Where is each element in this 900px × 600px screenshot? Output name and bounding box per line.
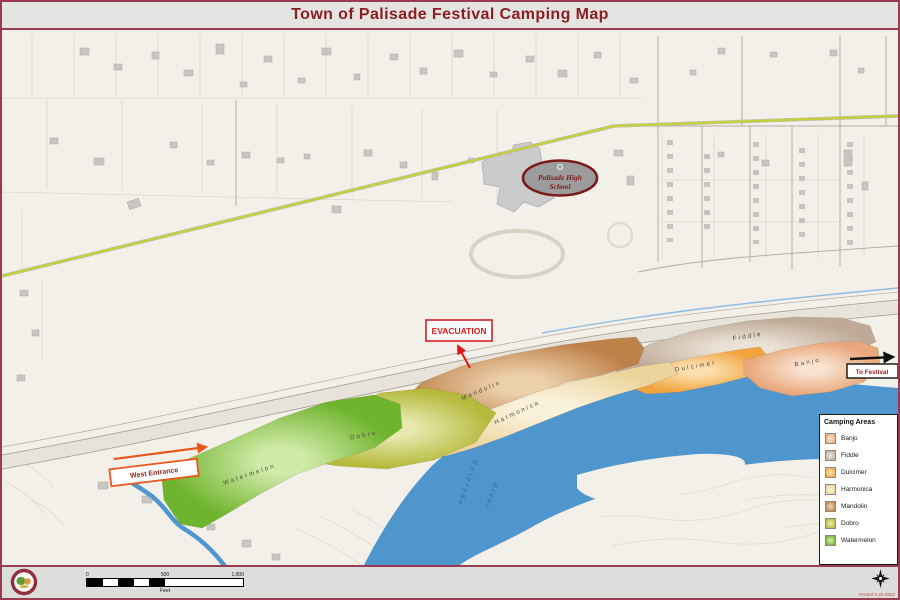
legend-swatch-dobro <box>825 518 836 529</box>
to-festival-label: To Festival <box>856 369 889 376</box>
legend-label: Watermelon <box>841 537 876 544</box>
scale-ticks: 0 500 1,000 <box>86 572 244 578</box>
evacuation-label: EVACUATION <box>432 326 487 336</box>
legend-label: Mandolin <box>841 503 867 510</box>
page-title: Town of Palisade Festival Camping Map <box>291 6 609 24</box>
scale-max: 1,000 <box>231 572 244 578</box>
title-bar: Town of Palisade Festival Camping Map <box>2 2 898 30</box>
legend-item: Banjo <box>823 430 894 447</box>
legend-swatch-mandolin <box>825 501 836 512</box>
printed-date-note: Printed 5-26-2022 <box>859 592 895 597</box>
scale-zero: 0 <box>86 572 89 578</box>
legend-item: Harmonica <box>823 481 894 498</box>
map-canvas: Watermelon Dobro Mandolin Harmonica Dulc… <box>2 30 898 565</box>
legend-swatch-fiddle <box>825 450 836 461</box>
school-name-line2: School <box>549 182 571 191</box>
legend-title: Camping Areas <box>824 419 894 426</box>
legend-label: Dobro <box>841 520 859 527</box>
school-label: Palisade High School <box>523 161 597 196</box>
legend-swatch-harmonica <box>825 484 836 495</box>
legend: Camping Areas Banjo Fiddle Dulcimer Harm… <box>819 414 898 565</box>
scale-bar: 0 500 1,000 Feet <box>86 572 244 592</box>
legend-swatch-watermelon <box>825 535 836 546</box>
legend-label: Banjo <box>841 435 858 442</box>
scale-unit: Feet <box>86 588 244 594</box>
legend-label: Fiddle <box>841 452 859 459</box>
scale-bar-graphic <box>86 578 244 587</box>
town-seal-logo <box>10 568 38 596</box>
legend-label: Harmonica <box>841 486 872 493</box>
compass-rose-icon <box>870 568 891 589</box>
map-document: Town of Palisade Festival Camping Map <box>0 0 900 600</box>
legend-item: Fiddle <box>823 447 894 464</box>
scale-mid: 500 <box>161 572 169 578</box>
legend-item: Mandolin <box>823 498 894 515</box>
legend-swatch-banjo <box>825 433 836 444</box>
legend-item: Watermelon <box>823 532 894 549</box>
legend-item: Dulcimer <box>823 464 894 481</box>
legend-item: Dobro <box>823 515 894 532</box>
legend-swatch-dulcimer <box>825 467 836 478</box>
footer-bar: 0 500 1,000 Feet Printed 5-26-2022 <box>2 565 898 598</box>
legend-label: Dulcimer <box>841 469 867 476</box>
school-name-line1: Palisade High <box>538 173 582 182</box>
